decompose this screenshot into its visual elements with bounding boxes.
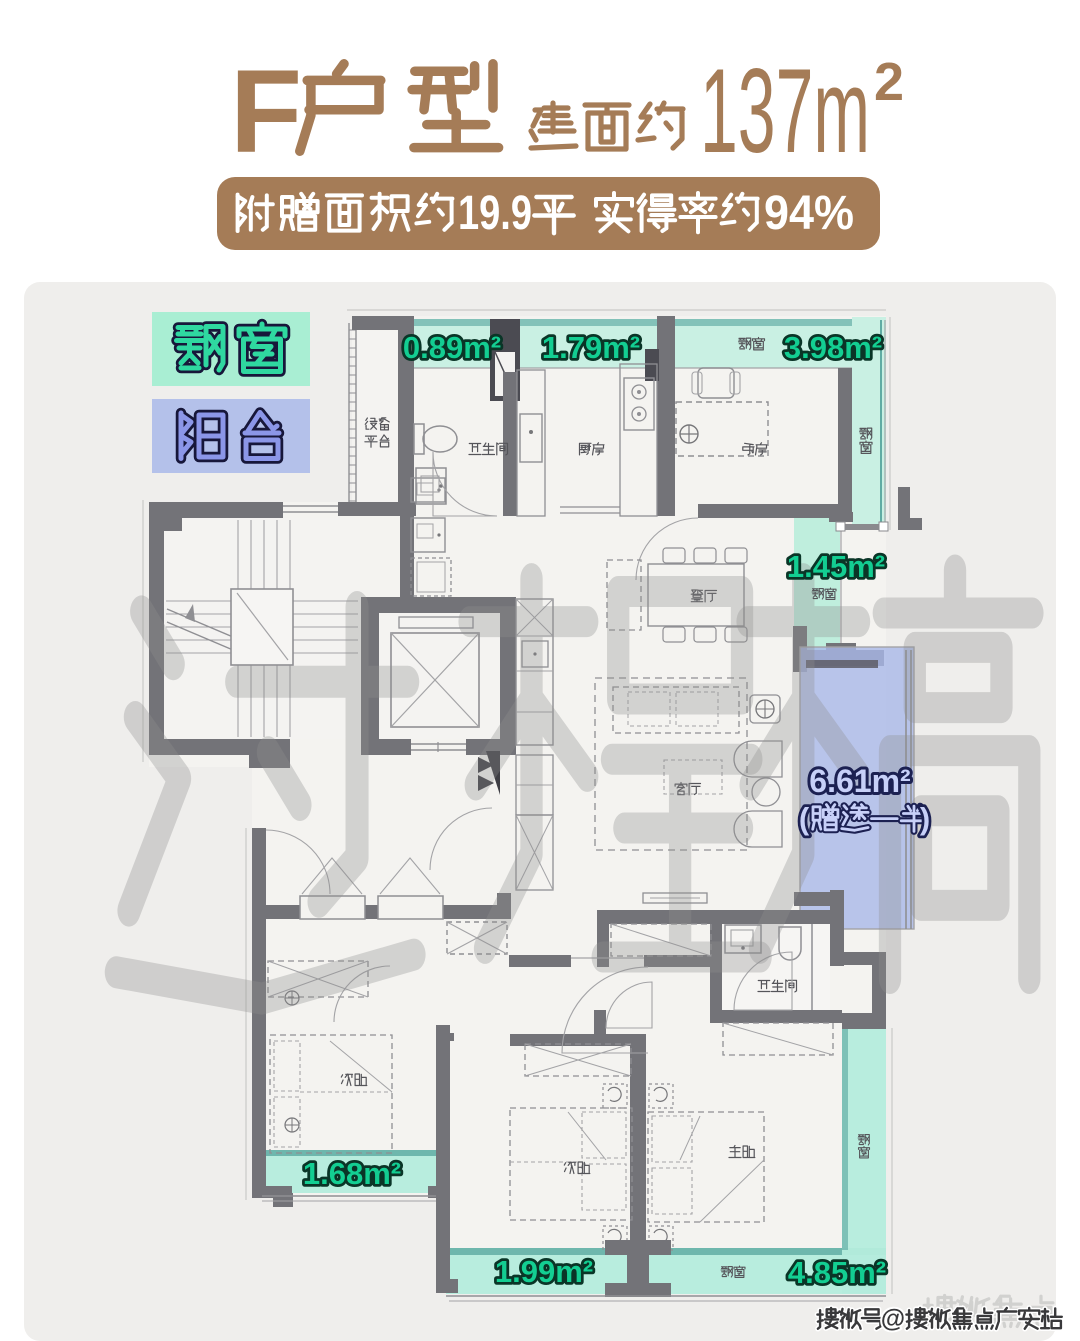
svg-text:1.68m²: 1.68m² xyxy=(303,1156,401,1191)
svg-text:19.9: 19.9 xyxy=(458,187,532,240)
svg-text:1.45m²: 1.45m² xyxy=(787,549,885,584)
svg-text:94%: 94% xyxy=(764,187,854,240)
svg-text:): ) xyxy=(920,801,930,836)
svg-text:1.79m²: 1.79m² xyxy=(542,330,640,365)
svg-text:137m: 137m xyxy=(700,44,870,178)
svg-text:0.89m²: 0.89m² xyxy=(403,330,501,365)
svg-text:(: ( xyxy=(799,801,810,836)
svg-text:F: F xyxy=(230,46,302,178)
svg-text:6.61m²: 6.61m² xyxy=(809,763,910,799)
svg-text:3.98m²: 3.98m² xyxy=(784,330,882,365)
svg-text:@: @ xyxy=(881,1305,905,1333)
svg-text:4.85m²: 4.85m² xyxy=(788,1255,886,1290)
svg-text:1.99m²: 1.99m² xyxy=(495,1254,593,1289)
svg-text:2: 2 xyxy=(874,52,904,112)
